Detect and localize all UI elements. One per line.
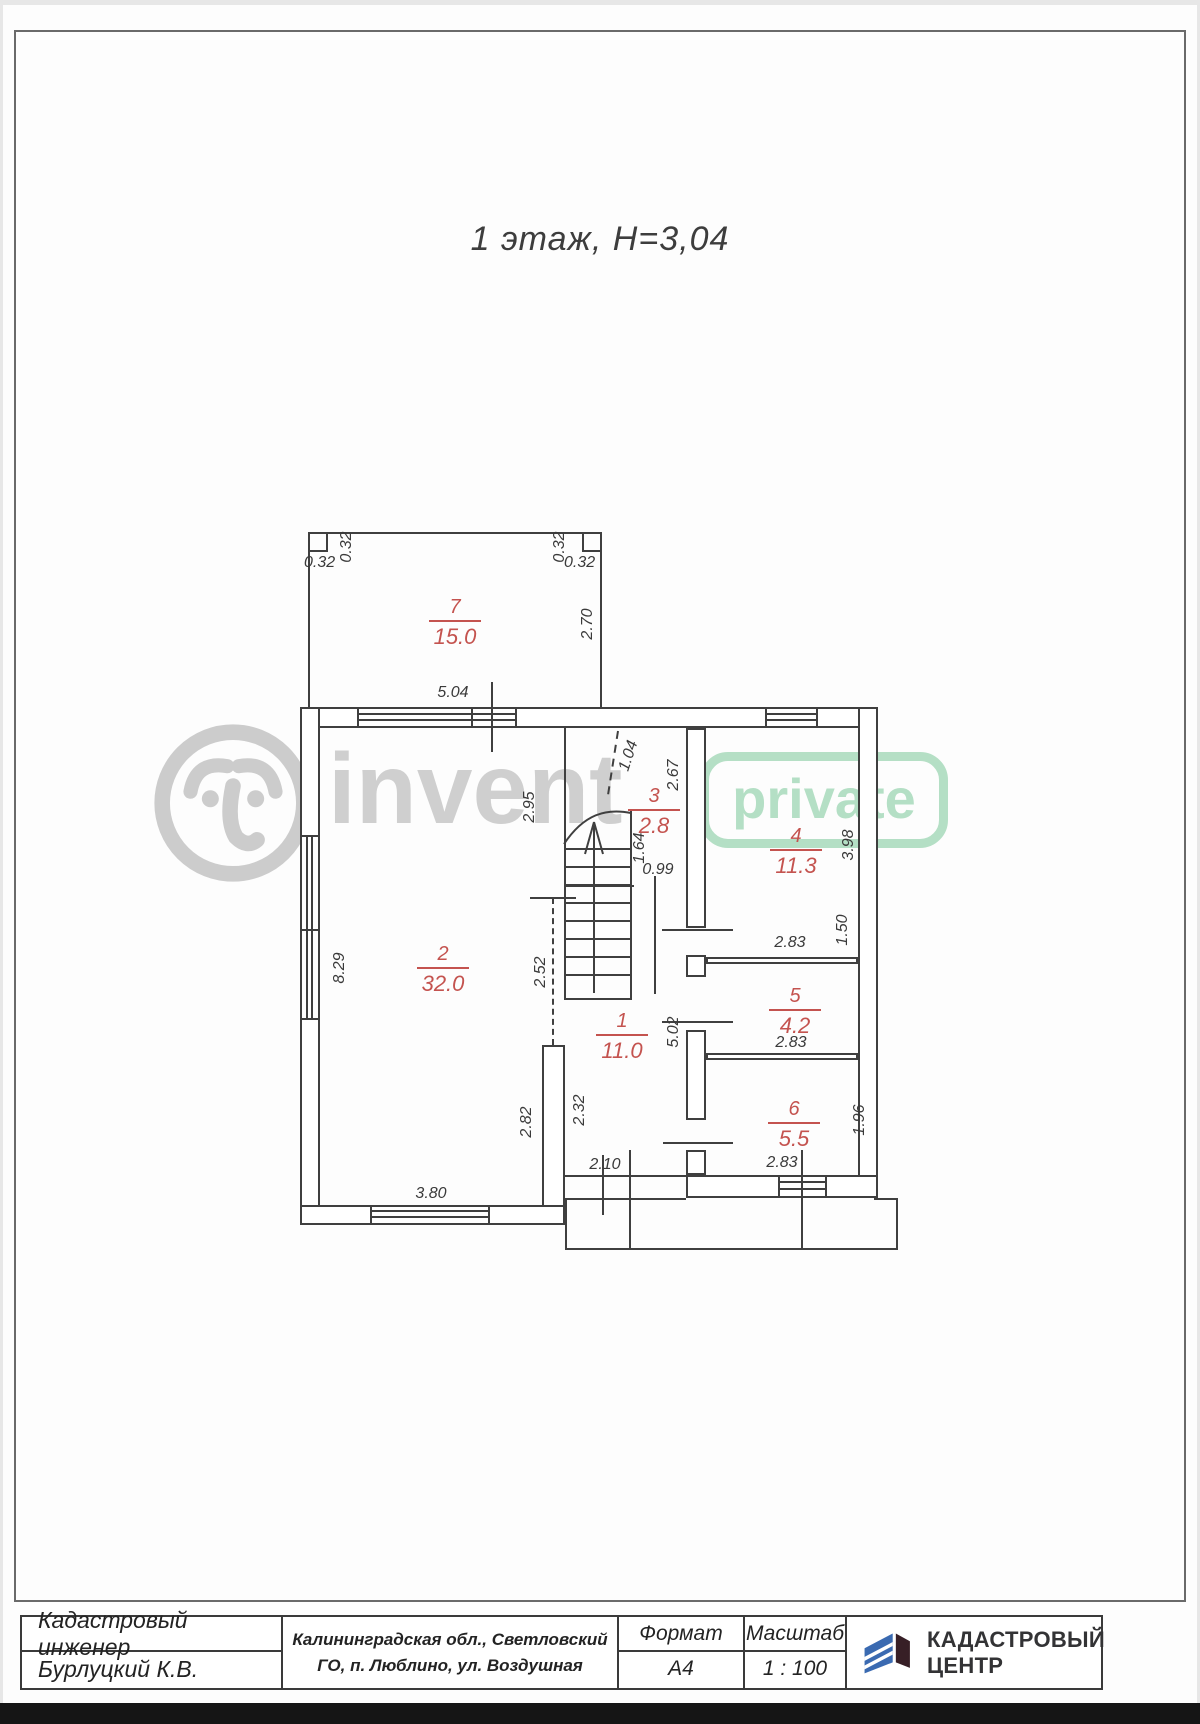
room-number: 5 (769, 985, 821, 1011)
porch-outline (565, 1198, 567, 1250)
format-cell: Формат А4 (619, 1617, 745, 1688)
open-boundary-dashed (552, 898, 554, 1045)
porch-outline (874, 1198, 898, 1200)
dim-label: 2.82 (518, 1092, 536, 1152)
window-symbol (300, 929, 320, 931)
dim-label: 2.70 (579, 594, 597, 654)
dim-label: 1.96 (851, 1090, 869, 1150)
scale-label: Масштаб (745, 1617, 845, 1652)
dimension-tick (663, 1142, 733, 1144)
porch-outline (565, 1198, 686, 1200)
logo-line-1: КАДАСТРОВЫЙ (927, 1627, 1105, 1652)
floor-plan: 0.32 0.32 0.32 0.32 5.04 2.70 2.95 1.04 … (0, 0, 1200, 1724)
scale-value: 1 : 100 (745, 1652, 845, 1686)
engineer-cell: Кадастровый инженер Бурлуцкий К.В. (22, 1617, 283, 1688)
wall-segment (564, 728, 566, 1000)
cadastral-center-logo-icon (863, 1625, 913, 1681)
dim-label: 3.98 (840, 815, 858, 875)
wall-notch (308, 532, 328, 552)
wall-segment (686, 1150, 706, 1175)
wall-segment (686, 955, 706, 977)
room-number: 4 (770, 825, 822, 851)
room-label-4: 4 11.3 (764, 825, 828, 880)
dim-label: 2.32 (571, 1080, 589, 1140)
dim-label: 0.99 (628, 861, 688, 879)
stair-tread (566, 884, 630, 886)
stair-tread (566, 974, 630, 976)
dim-label: 1.04 (611, 725, 647, 788)
room-area: 11.0 (590, 1037, 654, 1065)
room-label-1: 1 11.0 (590, 1010, 654, 1065)
scan-bottom-strip (0, 1703, 1200, 1724)
logo-text: КАДАСТРОВЫЙ ЦЕНТР (927, 1627, 1105, 1678)
dim-label: 2.83 (742, 1154, 822, 1172)
wall-segment (706, 1053, 858, 1060)
title-block: Кадастровый инженер Бурлуцкий К.В. Калин… (20, 1615, 1103, 1690)
dim-label: 1.50 (834, 900, 852, 960)
room-label-5: 5 4.2 (763, 985, 827, 1040)
address-cell: Калининградская обл., Светловский ГО, п.… (283, 1617, 619, 1688)
room-label-7: 7 15.0 (423, 596, 487, 651)
dim-label: 2.10 (565, 1156, 645, 1174)
room-number: 2 (417, 943, 469, 969)
window-symbol (300, 835, 320, 1020)
dim-label: 5.04 (413, 684, 493, 702)
dim-label: 5.02 (665, 1002, 683, 1062)
stair-tread (566, 848, 630, 850)
stair-tread (566, 866, 630, 868)
room-label-2: 2 32.0 (411, 943, 475, 998)
dimension-tick (662, 929, 733, 931)
address-line-1: Калининградская обл., Светловский (292, 1627, 607, 1653)
room-number: 6 (768, 1098, 820, 1124)
room-area: 11.3 (764, 852, 828, 880)
dim-label: 0.32 (338, 517, 356, 577)
dim-label: 8.29 (331, 938, 349, 998)
dimension-tick (654, 876, 656, 994)
room-area: 4.2 (763, 1012, 827, 1040)
wall-segment (686, 1030, 706, 1120)
window-symbol (370, 1210, 490, 1212)
window-symbol (765, 719, 818, 721)
format-value: А4 (619, 1652, 743, 1686)
porch-outline (565, 1248, 898, 1250)
logo-line-2: ЦЕНТР (927, 1653, 1105, 1678)
room-label-6: 6 5.5 (762, 1098, 826, 1153)
wall-notch (582, 532, 602, 552)
door-threshold (565, 1175, 686, 1177)
stair-tread (566, 938, 630, 940)
wall-segment (564, 998, 632, 1000)
room-number: 1 (596, 1010, 648, 1036)
wall-segment (686, 728, 706, 928)
window-symbol (311, 835, 313, 1020)
engineer-role: Кадастровый инженер (22, 1617, 281, 1652)
dim-label: 0.32 (564, 554, 595, 572)
porch-outline (896, 1198, 898, 1250)
window-symbol (357, 707, 517, 728)
dim-label: 2.83 (750, 934, 830, 952)
room-area: 2.8 (622, 812, 686, 840)
room-label-3: 3 2.8 (622, 785, 686, 840)
dim-label: 0.32 (304, 554, 335, 572)
room-area: 5.5 (762, 1125, 826, 1153)
wall-segment (542, 1045, 565, 1207)
logo-cell: КАДАСТРОВЫЙ ЦЕНТР (847, 1617, 1105, 1688)
window-symbol (370, 1216, 490, 1218)
stair-tread (566, 920, 630, 922)
window-symbol (471, 707, 473, 728)
room-area: 32.0 (411, 970, 475, 998)
stair-annotation (0, 0, 1200, 1724)
scale-cell: Масштаб 1 : 100 (745, 1617, 847, 1688)
stair-tread (566, 902, 630, 904)
window-symbol (765, 713, 818, 715)
window-symbol (765, 707, 818, 728)
dim-label: 2.52 (532, 942, 550, 1002)
dim-label: 2.95 (521, 777, 539, 837)
room-number: 7 (429, 596, 481, 622)
window-symbol (370, 1205, 490, 1225)
room-area: 15.0 (423, 623, 487, 651)
window-symbol (357, 713, 517, 715)
dimension-tick (530, 897, 576, 899)
wall-segment (600, 532, 602, 709)
room-number: 3 (628, 785, 680, 811)
format-label: Формат (619, 1617, 743, 1652)
address-line-2: ГО, п. Люблино, ул. Воздушная (317, 1653, 583, 1679)
stair-tread (566, 956, 630, 958)
window-symbol (357, 719, 517, 721)
window-symbol (306, 835, 308, 1020)
dim-label: 3.80 (391, 1185, 471, 1203)
